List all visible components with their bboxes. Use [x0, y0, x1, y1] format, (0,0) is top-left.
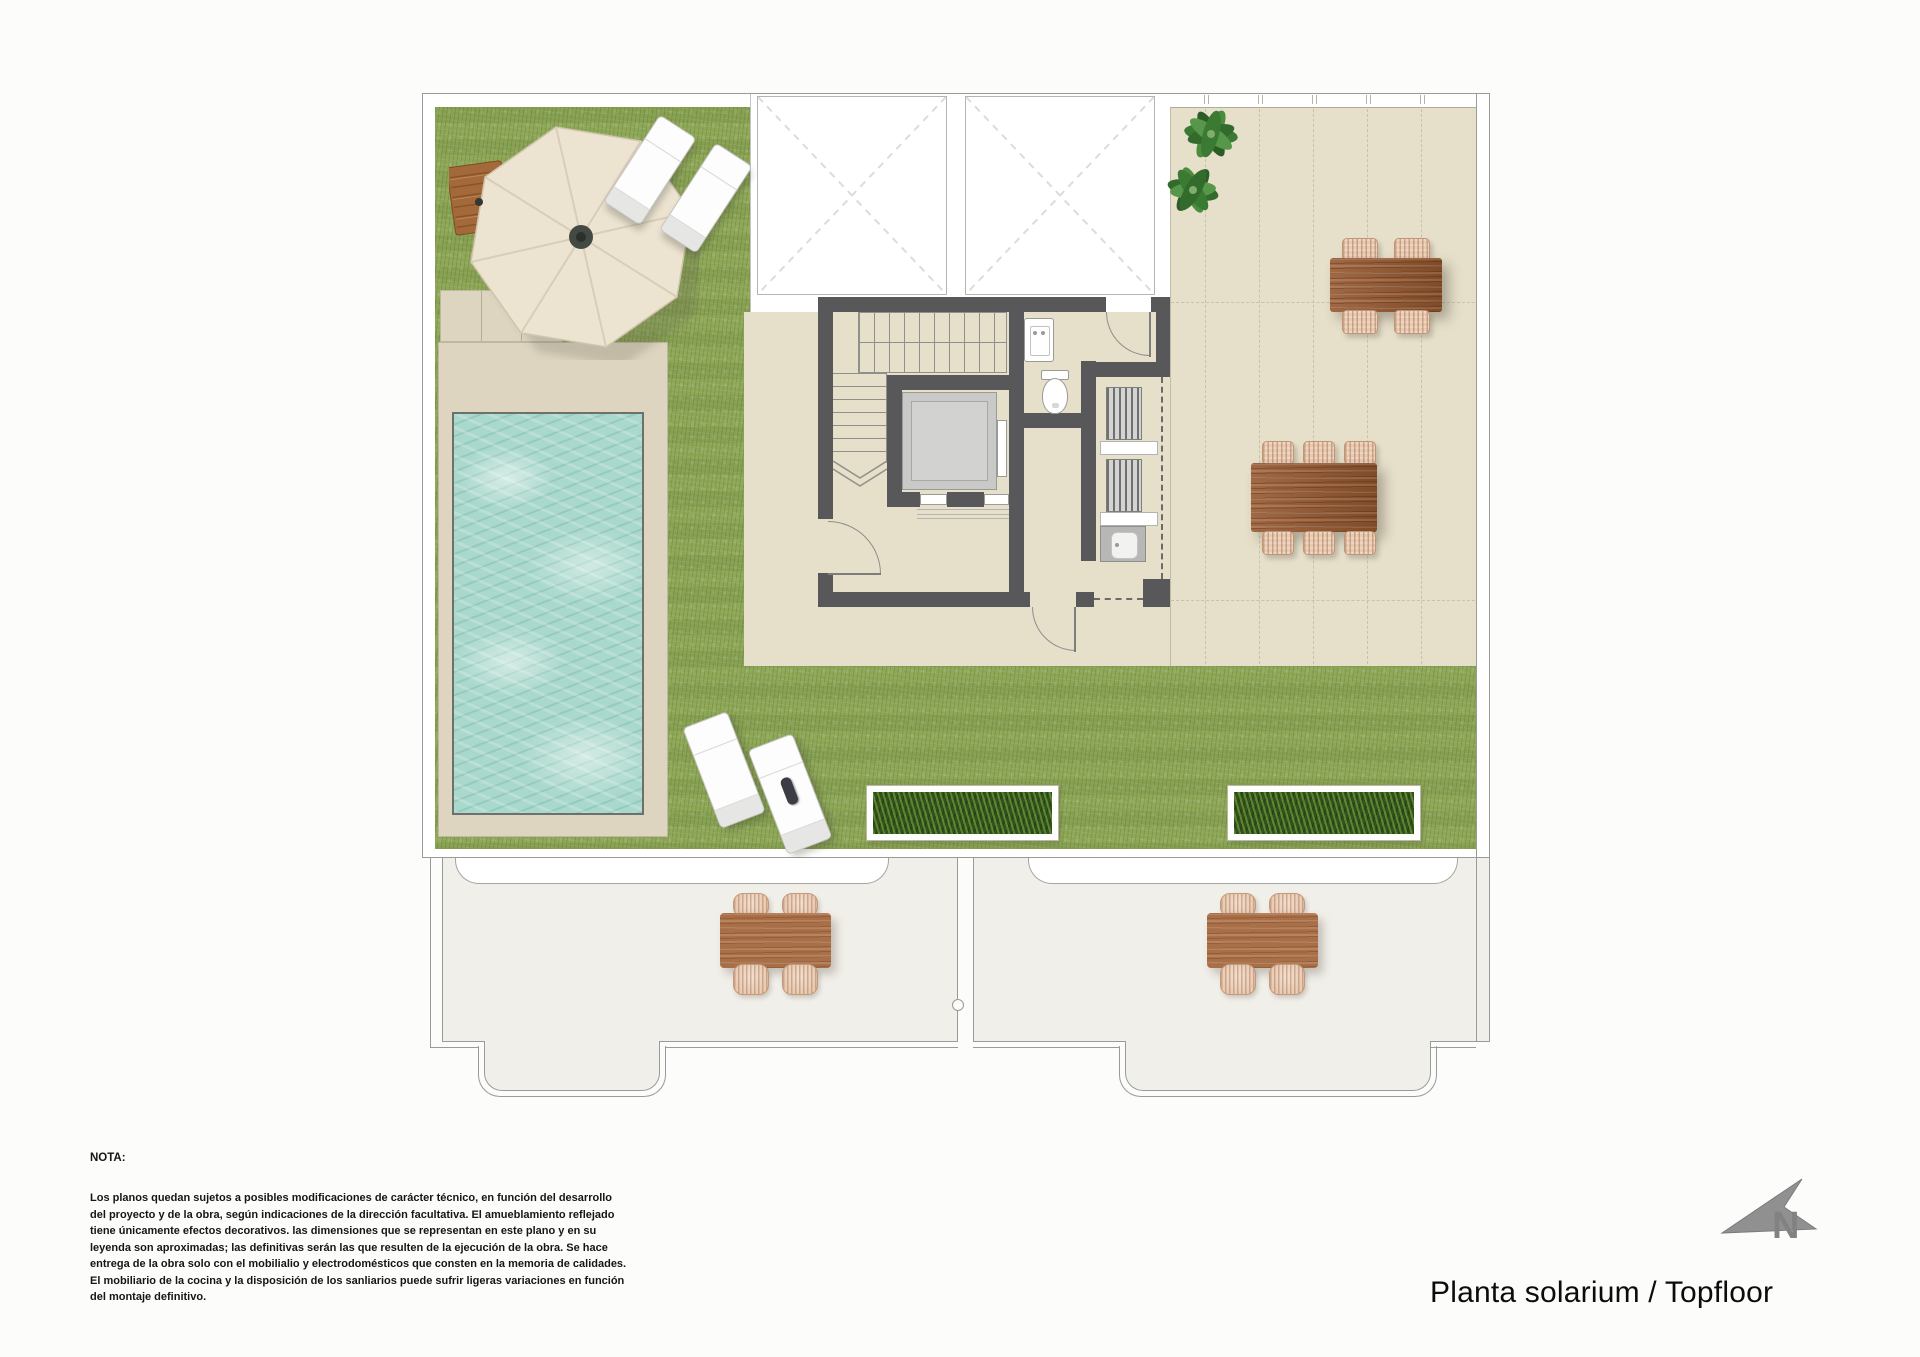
bathroom-wall [1081, 361, 1096, 561]
lower-terrace [442, 858, 958, 1042]
elevator-wall [887, 375, 902, 507]
elevator-door-gap [984, 494, 1009, 505]
towel-icon [779, 776, 799, 806]
flush-button-icon [1052, 403, 1059, 408]
note-line: Los planos quedan sujetos a posibles mod… [90, 1190, 626, 1207]
swimming-pool [452, 412, 644, 815]
plant-leaves [1166, 107, 1239, 216]
tile-joint [1171, 600, 1475, 601]
tile-joint [1367, 109, 1368, 664]
planter-box [867, 786, 1058, 840]
closet-wall [1096, 362, 1170, 377]
open-edge-dashed [1161, 377, 1163, 579]
wicker-stool [782, 964, 818, 995]
closet-shelf [1100, 512, 1158, 526]
wicker-chair [1262, 441, 1294, 465]
north-label: N [1772, 1205, 1799, 1248]
elevator-wall [887, 492, 920, 507]
tile-joint [1313, 109, 1314, 664]
pergola-tick [1366, 95, 1367, 104]
note-line: del proyecto y de la obra, según indicac… [90, 1207, 626, 1224]
dining-table [1330, 258, 1442, 312]
pergola-tick [1316, 95, 1317, 104]
door-leaf [1074, 607, 1076, 652]
core-wall [1143, 579, 1170, 607]
outline-line [973, 1047, 1119, 1048]
planter-box [1228, 786, 1420, 840]
wicker-chair [1394, 310, 1430, 334]
outdoor-sink-unit [1100, 526, 1146, 562]
elevator-wall [887, 375, 1011, 390]
terrace-step [1125, 1041, 1431, 1091]
wicker-stool [1269, 964, 1305, 995]
divider-notch [952, 999, 964, 1011]
pergola-tick [1312, 95, 1313, 104]
elevator-car [902, 392, 997, 490]
lounger-backrest [693, 738, 736, 755]
door-leaf [1149, 312, 1151, 357]
void-cross-icon [966, 97, 1154, 294]
drain-icon [1115, 543, 1119, 547]
terrace-roof-edge [1028, 858, 1458, 884]
toilet-bowl [1042, 378, 1068, 414]
outline-line [666, 1047, 958, 1048]
outline-line [1431, 1047, 1476, 1048]
pergola-tick [1370, 95, 1371, 104]
closet-shelf [1100, 441, 1158, 455]
faucet-icon [1041, 331, 1045, 335]
wicker-chair [1303, 531, 1335, 555]
note-line: El mobiliario de la cocina y la disposic… [90, 1273, 626, 1290]
stair-divider [859, 342, 1006, 343]
outline-line [1476, 858, 1477, 1042]
skylight-void [757, 96, 947, 295]
open-edge-dashed [1094, 598, 1143, 600]
washbasin [1024, 318, 1054, 362]
tile-joint [1421, 109, 1422, 664]
core-wall [818, 297, 833, 519]
wicker-stool [1220, 964, 1256, 995]
note-heading: NOTA: [90, 1152, 126, 1164]
core-wall [1076, 592, 1094, 607]
elevator-car-inner [911, 401, 988, 481]
wicker-stool [733, 964, 769, 995]
lounger-backrest [759, 761, 802, 778]
elevator-door-gap [920, 494, 947, 505]
page-title: Planta solarium / Topfloor [1430, 1276, 1773, 1310]
patio-table [720, 913, 831, 968]
core-wall [1009, 312, 1024, 592]
floor-plan-page: NOTA: Los planos quedan sujetos a posibl… [0, 0, 1920, 1357]
note-line: leyenda son aproximadas; las definitivas… [90, 1240, 626, 1257]
stair-direction-arrow [833, 459, 887, 489]
stair-upper-flight [858, 312, 1007, 373]
wicker-chair [1344, 441, 1376, 465]
skylight-void [965, 96, 1155, 295]
note-line: del montaje definitivo. [90, 1289, 626, 1306]
elevator-sill [917, 509, 1009, 519]
wicker-chair [1344, 531, 1376, 555]
patio-table [1207, 913, 1318, 968]
wicker-chair [1262, 531, 1294, 555]
faucet-icon [1033, 331, 1037, 335]
ac-unit [1106, 387, 1142, 440]
wicker-chair [1303, 441, 1335, 465]
core-wall [1156, 297, 1170, 362]
lounger-backrest [701, 166, 737, 190]
terrace-step [484, 1041, 660, 1091]
dining-table [1251, 463, 1377, 532]
core-wall [818, 592, 1030, 607]
ac-unit [1106, 459, 1142, 512]
note-line: entrega de la obra solo con el mobiliali… [90, 1256, 626, 1273]
parapet-band [1476, 94, 1489, 857]
pergola-tick [1424, 95, 1425, 104]
potted-plant [1163, 90, 1268, 225]
terrace-roof-edge [455, 858, 889, 884]
core-wall [818, 297, 1106, 312]
lounger-backrest [645, 138, 681, 162]
elevator-door-panel [997, 420, 1007, 477]
note-line: tiene únicamente efectos decorativos. la… [90, 1223, 626, 1240]
wicker-chair [1342, 310, 1378, 334]
pergola-tick [1420, 95, 1421, 104]
outline-line [430, 858, 431, 1048]
note-text: Los planos quedan sujetos a posibles mod… [90, 1190, 626, 1306]
stair-side-flight [833, 373, 887, 463]
outline-line [430, 1047, 478, 1048]
door-leaf [828, 573, 881, 575]
elevator-wall [947, 492, 984, 507]
void-cross-icon [758, 97, 946, 294]
